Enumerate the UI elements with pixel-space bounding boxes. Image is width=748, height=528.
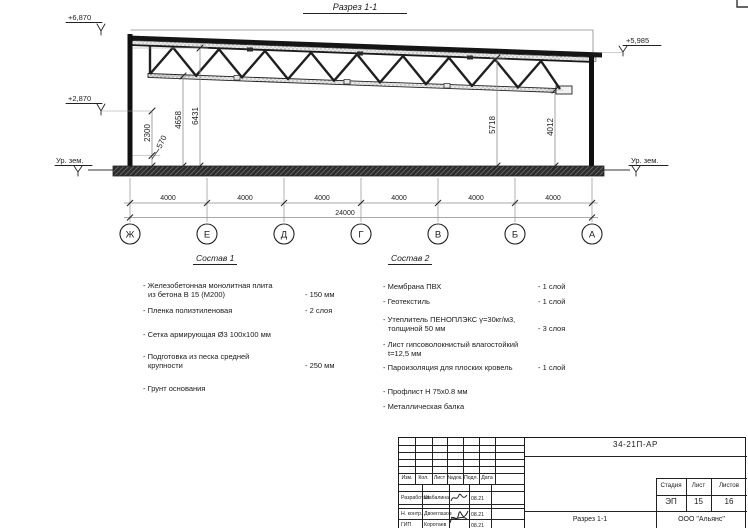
list-item: - Утеплитель ПЕНОПЛЭКС γ=30кг/м3, толщин…	[383, 315, 613, 333]
total-dim: 24000	[335, 210, 355, 217]
span-dim: 4000	[545, 195, 561, 202]
frame-corner-fragment	[737, 0, 748, 7]
col-podp: Подл.	[463, 475, 479, 481]
axis-label: Б	[512, 230, 518, 241]
doc-number: 34-21П-АР	[524, 442, 747, 448]
row-date: 08.21	[471, 523, 484, 528]
elevation-ground-right: Ур. зем.	[629, 156, 668, 176]
sheet-value: 15	[686, 499, 711, 505]
dim-label-570: 570	[155, 133, 169, 149]
section-drawing: 2300 570 4658 6431 5718 4012 +6,870 +2,8…	[0, 0, 748, 250]
svg-text:Ур. зем.: Ур. зем.	[631, 156, 659, 165]
row-date: 08.21	[471, 512, 484, 518]
svg-text:+6,870: +6,870	[68, 13, 91, 22]
company-name: ООО "Альянс"	[656, 517, 747, 523]
sheet-label: Лист	[686, 483, 711, 489]
stamp-section-name: Разрез 1-1	[524, 517, 656, 523]
signature-icon	[447, 505, 471, 528]
list-item: - Геотекстиль - 1 слой	[383, 297, 613, 306]
col-ndok: №док.	[447, 475, 463, 481]
left-column	[128, 34, 133, 168]
span-dim: 4000	[160, 195, 176, 202]
gusset-plate	[247, 48, 253, 52]
list-item: - Мембрана ПВХ - 1 слой	[383, 282, 613, 291]
floor-slab	[113, 166, 604, 176]
drawing-sheet: Разрез 1-1	[0, 0, 748, 528]
svg-text:+2,870: +2,870	[68, 94, 91, 103]
list-item: - Грунт основания	[143, 384, 383, 393]
dim-label-4658: 4658	[174, 111, 183, 129]
svg-text:Ур. зем.: Ур. зем.	[56, 156, 84, 165]
dim-label-5718: 5718	[488, 116, 497, 134]
sheets-value: 16	[711, 499, 747, 505]
span-dim: 4000	[237, 195, 253, 202]
list-item: - Сетка армирующая Ø3 100х100 мм	[143, 330, 383, 339]
level-arrow-icon	[74, 166, 82, 176]
sheets-label: Листов	[711, 483, 747, 489]
truss-bottom-chord	[148, 74, 558, 93]
dim-label-2300: 2300	[143, 124, 152, 142]
gusset-plate	[234, 76, 240, 81]
row-role: ГИП	[401, 522, 411, 528]
axis-label: Г	[358, 230, 363, 241]
elevation-top-right: +5,985	[602, 36, 661, 56]
list-item: - Железобетонная монолитная плита из бет…	[143, 281, 383, 299]
axis-label: Е	[204, 230, 210, 241]
axis-label: А	[589, 230, 596, 241]
material-list-1: Состав 1 - Железобетонная монолитная пли…	[143, 248, 383, 398]
dim-label-4012: 4012	[546, 118, 555, 136]
building-structure	[88, 30, 630, 176]
elevation-mid-left: +2,870	[66, 94, 152, 115]
gusset-plate	[467, 56, 473, 60]
col-list: Лист	[432, 475, 447, 481]
level-arrow-icon	[97, 104, 105, 115]
signature-icon	[449, 491, 469, 504]
level-arrow-icon	[619, 46, 627, 56]
row-role: Н. контр.	[401, 511, 422, 517]
list-2-title: Состав 2	[388, 253, 432, 265]
list-item: - Подготовка из песка средней крупности …	[143, 352, 383, 370]
axis-label: В	[435, 230, 441, 241]
list-item: - Металлическая балка	[383, 402, 613, 411]
title-block: 34-21П-АР Изм. Кол. Лист №док. Подл. Дат…	[398, 437, 746, 528]
list-item: - Профлист Н 75х0.8 мм	[383, 387, 613, 396]
dim-label-6431: 6431	[191, 107, 200, 125]
elevation-ground-left: Ур. зем.	[55, 156, 92, 176]
col-kol: Кол.	[415, 475, 432, 481]
list-item: - Пленка полиэтиленовая - 2 слоя	[143, 306, 383, 315]
axis-bubbles: Ж Е Д Г В Б А	[120, 224, 602, 244]
list-1-title: Состав 1	[193, 253, 237, 265]
axis-label: Д	[281, 230, 288, 241]
gusset-plate	[357, 52, 363, 56]
span-dim: 4000	[468, 195, 484, 202]
row-date: 08.21	[471, 496, 484, 502]
col-izm: Изм.	[399, 475, 415, 481]
list-item: - Пароизоляция для плоских кровель - 1 с…	[383, 363, 613, 372]
row-name: Коротаев	[424, 522, 446, 528]
right-column	[589, 56, 594, 168]
level-arrow-icon	[632, 166, 640, 176]
gusset-plate	[344, 80, 350, 85]
material-list-2: Состав 2 - Мембрана ПВХ - 1 слой - Геоте…	[383, 248, 613, 418]
list-item: - Лист гипсоволокнистый влагостойкий t=1…	[383, 340, 613, 358]
level-arrow-icon	[97, 24, 105, 35]
axis-label: Ж	[126, 230, 135, 241]
stage-value: ЭП	[656, 499, 686, 505]
gusset-plate	[444, 84, 450, 89]
svg-text:+5,985: +5,985	[626, 36, 649, 45]
stage-label: Стадия	[656, 483, 686, 489]
axis-dimensions: 4000 4000 4000 4000 4000 4000 24000 Ж Е …	[120, 178, 602, 244]
span-dim: 4000	[391, 195, 407, 202]
span-dim: 4000	[314, 195, 330, 202]
elevation-top-left: +6,870	[66, 13, 105, 35]
row-name: Шабалина	[424, 495, 449, 501]
col-data: Дата	[479, 475, 495, 481]
